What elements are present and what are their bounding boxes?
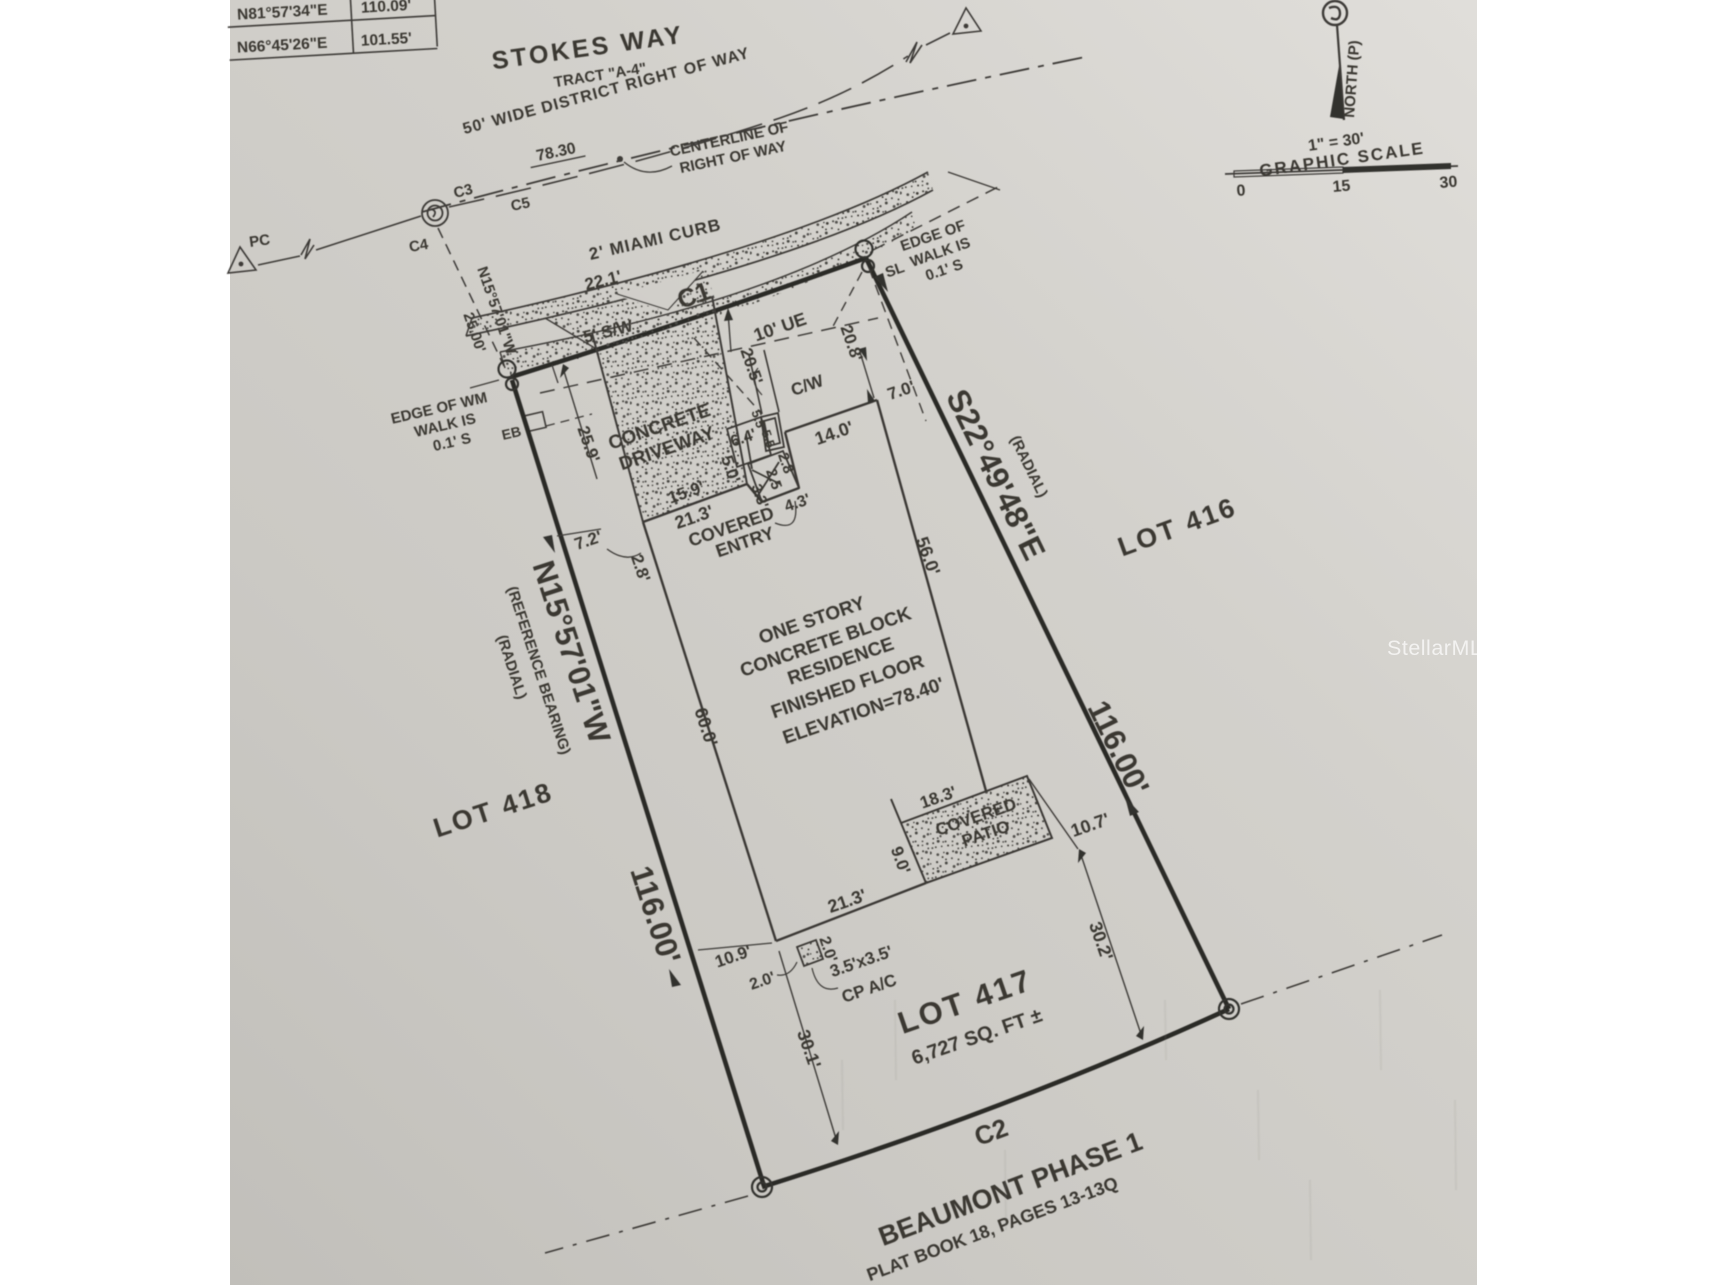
svg-text:C4: C4: [408, 236, 430, 256]
svg-text:110.09': 110.09': [361, 0, 412, 17]
svg-text:0: 0: [1236, 182, 1246, 200]
svg-text:30: 30: [1439, 173, 1458, 191]
svg-text:15: 15: [1332, 177, 1351, 195]
svg-text:PC: PC: [248, 231, 271, 251]
svg-text:101.55': 101.55': [360, 30, 412, 50]
svg-text:StellarMLS: StellarMLS: [1387, 636, 1497, 660]
